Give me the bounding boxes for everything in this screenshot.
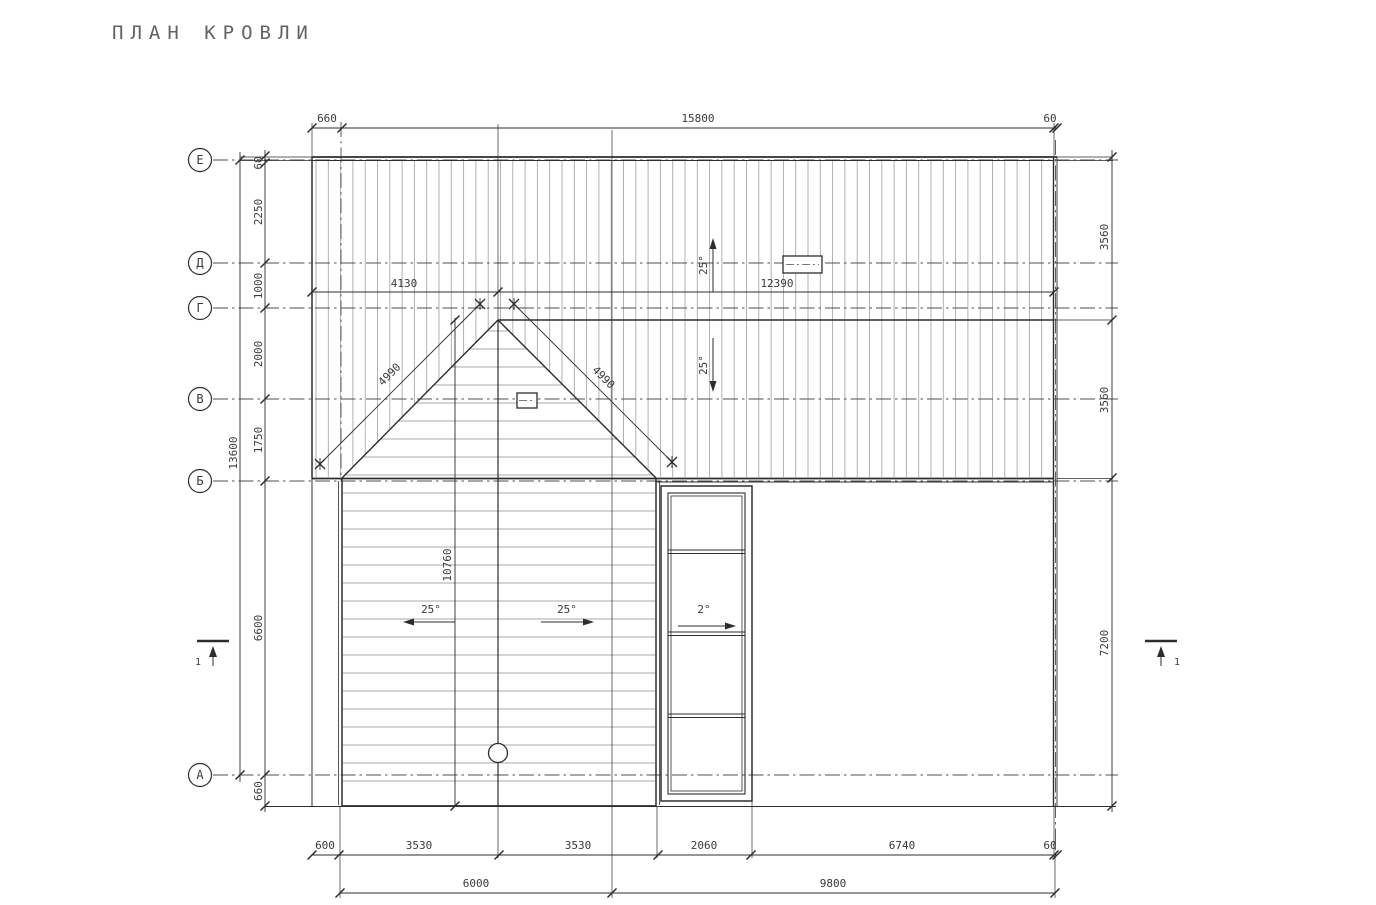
- dimension-label: 2000: [252, 341, 265, 368]
- dimension-label: 9800: [820, 877, 847, 890]
- dimension-label: 3560: [1098, 224, 1111, 251]
- dimension-label: 4990: [590, 364, 618, 392]
- slope-label: 25°: [421, 603, 441, 616]
- axis-bubble-label: В: [196, 392, 203, 406]
- axis-bubble-label: Г: [196, 301, 203, 315]
- axis-bubble-label: Б: [196, 474, 203, 488]
- slope-label: 2°: [697, 603, 710, 616]
- drawing-sheet: ПЛАН КРОВЛИ ЕДГВБА6601580060413012390602…: [0, 0, 1376, 905]
- dimension-label: 12390: [760, 277, 793, 290]
- slope-arrow-head: [403, 619, 414, 626]
- dimension-label: 3560: [1098, 387, 1111, 414]
- dimension-line: [320, 304, 480, 464]
- dimension-label: 6740: [889, 839, 916, 852]
- roof-outlet-circle: [489, 744, 508, 763]
- dimension-label: 4130: [391, 277, 418, 290]
- dimension-label: 1750: [252, 427, 265, 454]
- dimension-label: 3530: [565, 839, 592, 852]
- dimension-label: 60: [252, 156, 265, 169]
- shaft-inner-outline: [671, 496, 742, 791]
- axis-bubble-label: Д: [196, 256, 204, 270]
- dimension-label: 660: [317, 112, 337, 125]
- dimension-label: 7200: [1098, 630, 1111, 657]
- shaft-inner-outline: [668, 493, 745, 794]
- roof-hatch-vertical: [316, 161, 1042, 477]
- dimension-label: 3530: [406, 839, 433, 852]
- shaft-outer-outline: [661, 486, 752, 801]
- dimension-label: 60: [1043, 112, 1056, 125]
- dimension-label: 13600: [227, 436, 240, 469]
- roof-plan-drawing: ЕДГВБА6601580060413012390602250100020001…: [0, 0, 1376, 905]
- slope-arrow-head: [710, 238, 717, 249]
- section-label: 1: [1174, 657, 1180, 668]
- dimension-label: 15800: [681, 112, 714, 125]
- dimension-label: 6000: [463, 877, 490, 890]
- dimension-label: 600: [315, 839, 335, 852]
- axis-bubble-label: Е: [196, 153, 203, 167]
- dimension-label: 2060: [691, 839, 718, 852]
- dimension-label: 660: [252, 781, 265, 801]
- slope-arrow-head: [209, 646, 217, 657]
- axis-bubble-label: А: [196, 768, 204, 782]
- slope-arrow-head: [710, 381, 717, 392]
- slope-label: 25°: [697, 355, 710, 375]
- slope-arrow-head: [583, 619, 594, 626]
- dimension-label: 2250: [252, 199, 265, 226]
- dimension-label: 6600: [252, 615, 265, 642]
- slope-arrow-head: [725, 623, 736, 630]
- slope-label: 25°: [697, 255, 710, 275]
- dimension-label: 10760: [441, 548, 454, 581]
- dimension-label: 1000: [252, 273, 265, 300]
- dimension-label: 60: [1043, 839, 1056, 852]
- slope-arrow-head: [1157, 646, 1165, 657]
- slope-label: 25°: [557, 603, 577, 616]
- section-label: 1: [195, 657, 201, 668]
